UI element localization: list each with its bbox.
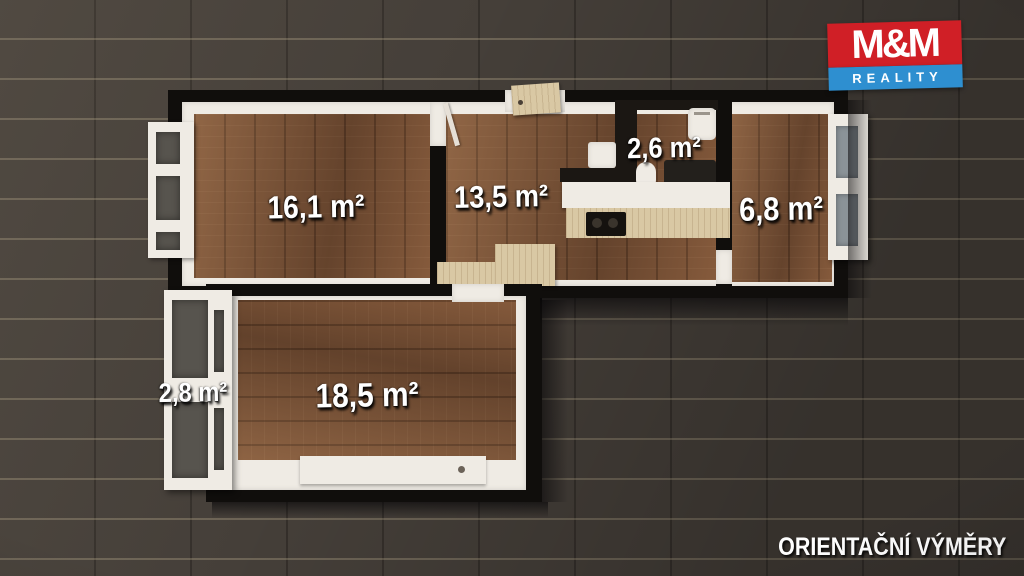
- window-left-pane-bottom: [156, 232, 180, 250]
- entry-door-handle: [518, 100, 523, 105]
- area-label-balcony: 2,8 m²: [158, 377, 227, 409]
- shadow-right-upper: [848, 100, 872, 298]
- balcony-glass-side-top: [214, 310, 224, 372]
- shadow-under-upper: [540, 298, 848, 326]
- brand-logo-mm: M&M: [827, 20, 962, 67]
- window-left-pane-top: [156, 132, 180, 164]
- area-label-bedroom: 18,5 m²: [315, 375, 419, 416]
- area-label-kitchen: 13,5 m²: [454, 178, 549, 216]
- shadow-right-lower: [542, 300, 568, 502]
- footer-note: ORIENTAČNÍ VÝMĚRY: [778, 533, 1006, 562]
- brand-logo-reality: REALITY: [828, 64, 963, 90]
- balcony-glass-side-bottom: [214, 408, 224, 470]
- cooktop-burner-right: [608, 218, 618, 228]
- hall-chair: [588, 142, 616, 168]
- door-opening-smallroom: [716, 250, 732, 284]
- area-label-bathroom: 2,6 m²: [627, 132, 701, 166]
- entry-door-leaf: [511, 82, 561, 115]
- radiator-valve: [458, 466, 465, 473]
- bathroom-wall-bottom: [560, 168, 634, 182]
- floorplan-render: 16,1 m² 13,5 m² 2,6 m² 6,8 m² 2,8 m² 18,…: [0, 0, 1024, 576]
- brand-logo: M&M REALITY: [827, 20, 963, 90]
- kitchen-counter: [562, 182, 730, 208]
- toilet-tank-line: [694, 112, 710, 115]
- window-left-pane-mid: [156, 176, 180, 220]
- area-label-smallroom: 6,8 m²: [739, 189, 824, 229]
- door-opening-bedroom: [452, 284, 504, 302]
- balcony-glass-top: [172, 300, 208, 378]
- area-label-living: 16,1 m²: [267, 188, 365, 227]
- shadow-under-lower: [212, 502, 548, 518]
- balcony-glass-bottom: [172, 402, 208, 478]
- cooktop-burner-left: [592, 218, 602, 228]
- hall-step-low: [437, 262, 495, 286]
- hall-wardrobe: [495, 244, 555, 286]
